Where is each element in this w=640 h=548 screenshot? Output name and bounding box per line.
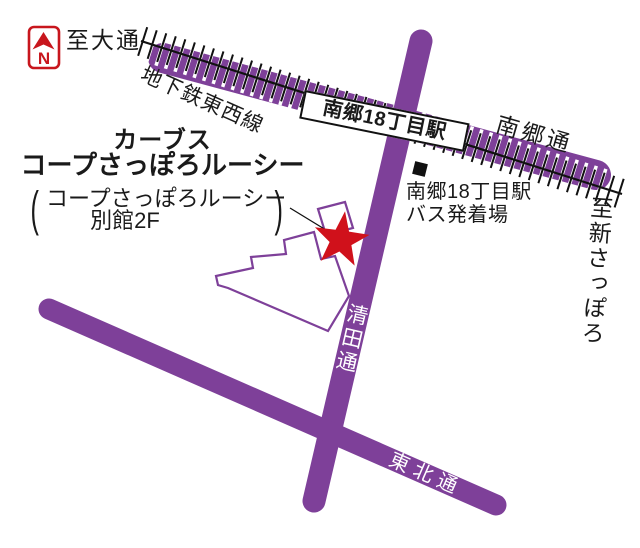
north-compass-icon: N	[29, 27, 59, 68]
destination-name-line2: コープさっぽろルーシー	[20, 151, 305, 179]
bus-stop-marker	[412, 161, 428, 177]
building-outline	[216, 202, 353, 331]
note-paren-close: )	[274, 185, 282, 234]
compass-letter: N	[38, 49, 50, 68]
bus-stop-label-line2: バス発着場	[406, 204, 532, 227]
bus-stop-label: 南郷18丁目駅 バス発着場	[406, 181, 532, 227]
map-graphics: N	[0, 0, 640, 548]
bus-stop-label-line1: 南郷18丁目駅	[406, 181, 532, 204]
to-odori-label: 至大通	[66, 28, 141, 53]
note-paren-open: (	[30, 185, 38, 234]
destination-note-line2: 別館2F	[70, 209, 180, 233]
access-map: { "map": { "compass": { "letter": "N" },…	[0, 0, 640, 548]
